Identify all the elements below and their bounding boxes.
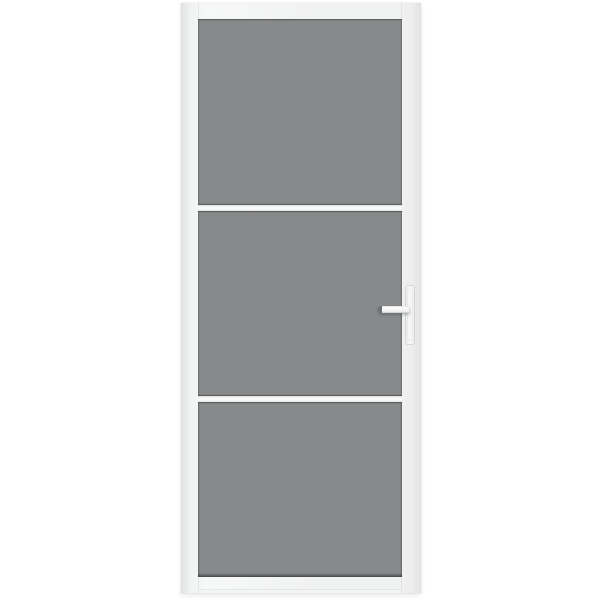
door-handle-lever-end-cap xyxy=(378,306,382,313)
glass-pane-bottom xyxy=(198,402,402,577)
interior-door xyxy=(181,3,421,593)
handle-backplate-inner xyxy=(407,289,413,341)
door-bottom-rail-step xyxy=(199,590,400,593)
door-handle-lever xyxy=(378,306,410,313)
handle-backplate xyxy=(405,285,415,345)
glass-pane-top xyxy=(198,19,402,205)
frame-seam-top-left xyxy=(198,3,199,19)
product-photo-background xyxy=(0,0,600,600)
glass-pane-middle xyxy=(198,211,402,396)
door-glazing-area xyxy=(198,19,402,577)
frame-seam-top-right xyxy=(401,3,402,19)
frame-seam-bottom-right xyxy=(401,577,402,593)
